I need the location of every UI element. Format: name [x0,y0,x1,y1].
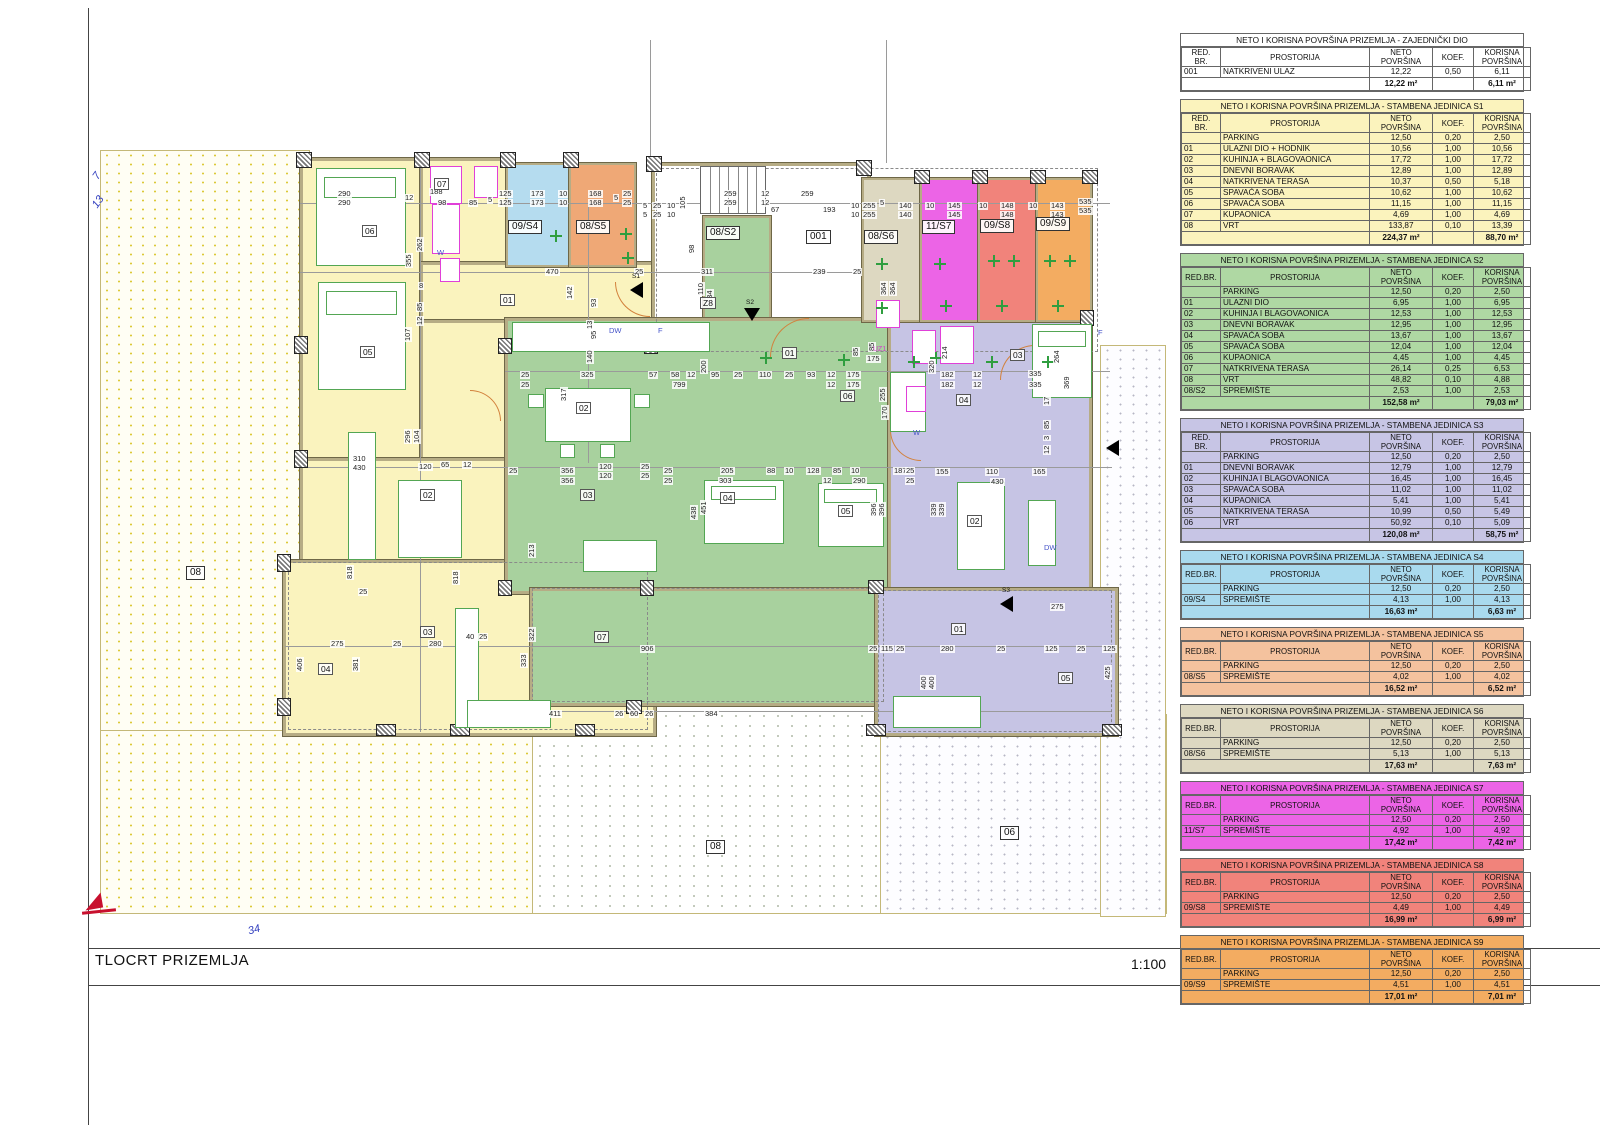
table-cell [1182,452,1221,463]
table-cell: 4,51 [1474,980,1531,991]
wall-pier [376,724,396,736]
column-header: RED. BR. [1182,433,1221,452]
dimension-label: 12 [760,199,770,207]
dimension-label: 303 [718,477,733,485]
area-table-s4: NETO I KORISNA POVRŠINA PRIZEMLJA - STAM… [1180,550,1524,620]
table-row: 06VRT50,920,105,09 [1182,518,1531,529]
table-cell: VRT [1221,221,1370,232]
dimension-label: 200 [700,359,708,374]
table-cell: 48,82 [1370,375,1433,386]
table-cell [1182,815,1221,826]
wall-pier [498,338,512,354]
entrance-arrow-label: S3 [1002,587,1010,594]
table-total-cell: 16,52 m² [1370,683,1433,696]
plant-icon [940,300,952,312]
dimension-label: 406 [296,657,304,672]
table-row: PARKING12,500,202,50 [1182,738,1531,749]
dimension-label: 85 [1043,420,1051,430]
dimension-label: 120 [598,472,613,480]
table-cell: 03 [1182,485,1221,496]
table-cell: 4,49 [1474,903,1531,914]
appliance-label: DW [609,326,622,335]
table-cell: 001 [1182,67,1221,78]
room-number-label: 01 [500,294,515,306]
dimension-label: 5 [642,211,648,219]
red-corner-mark [83,893,103,911]
dimension-label: 280 [940,645,955,653]
table-cell: 10,56 [1370,144,1433,155]
table-row: 04NATKRIVENA TERASA10,370,505,18 [1182,177,1531,188]
unit-label: 11/S7 [922,220,955,234]
drawing-sheet: TLOCRT PRIZEMLJA 1:100 29029012188988551… [0,0,1600,1132]
column-header: KORISNA POVRŠINA [1474,642,1531,661]
table-total-cell: 17,01 m² [1370,991,1433,1004]
table-cell: SPAVAĆA SOBA [1221,199,1370,210]
table-cell: 12,53 [1370,309,1433,320]
table-cell: 2,50 [1474,738,1531,749]
table-cell: 16,45 [1370,474,1433,485]
table-total-cell [1433,606,1474,619]
column-header: KOEF. [1433,114,1474,133]
table-cell: 13,67 [1370,331,1433,342]
dimension-label: 85 [852,347,860,357]
furniture-box [467,700,551,728]
column-header: NETO POVRŠINA [1370,796,1433,815]
table-cell: ULAZNI DIO + HODNIK [1221,144,1370,155]
dimension-label: 906 [640,645,655,653]
dimension-label: 12 [760,190,770,198]
dimension-label: 310 [352,455,367,463]
unit-label: 06 [1000,826,1019,840]
table-cell: 12,50 [1370,738,1433,749]
table-cell: 12,50 [1370,287,1433,298]
table-cell: 0,20 [1433,287,1474,298]
table-cell: 12,50 [1370,661,1433,672]
column-header: KOEF. [1433,48,1474,67]
furniture-box [560,444,575,458]
table-total-cell [1433,78,1474,91]
area-table-s1: NETO I KORISNA POVRŠINA PRIZEMLJA - STAM… [1180,99,1524,246]
table-cell: DNEVNI BORAVAK [1221,166,1370,177]
room-number-label: 02 [576,402,591,414]
wall-pier [498,580,512,596]
column-header: RED.BR. [1182,642,1221,661]
table-cell: 04 [1182,496,1221,507]
room-number-label: 06 [840,390,855,402]
dimension-label: 107 [404,327,412,342]
table-cell: 1,00 [1433,320,1474,331]
room-number-label: 04 [956,394,971,406]
dimension-label: 140 [586,349,594,364]
unit-label: 09/S4 [508,220,542,234]
table-cell: 6,95 [1370,298,1433,309]
table-total-cell: 6,63 m² [1474,606,1531,619]
dimension-label: 290 [337,199,352,207]
dimension-label: 58 [670,371,680,379]
dimension-label: 259 [800,190,815,198]
furniture-box [1028,500,1056,566]
dimension-label: 25 [652,211,662,219]
entrance-arrow-icon [1106,440,1119,456]
table-cell: 4,45 [1370,353,1433,364]
table-row: 05SPAVAĆA SOBA10,621,0010,62 [1182,188,1531,199]
table-cell: 1,00 [1433,463,1474,474]
dimension-label: 10 [784,467,794,475]
table-row: 09/S8SPREMIŠTE4,491,004,49 [1182,903,1531,914]
area-table-title: NETO I KORISNA POVRŠINA PRIZEMLJA - STAM… [1181,254,1523,267]
room-number-label: 05 [838,505,853,517]
table-cell: SPAVAĆA SOBA [1221,342,1370,353]
table-cell [1182,133,1221,144]
table-cell: 17,72 [1474,155,1531,166]
dimension-label: 17 [1043,396,1051,406]
dimension-label: 125 [1044,645,1059,653]
table-cell: 05 [1182,342,1221,353]
wall-pier [500,152,516,168]
furniture-bed [316,168,406,266]
table-cell: NATKRIVENI ULAZ [1221,67,1370,78]
dimension-label: 339 [938,502,946,517]
appliance-label: W [437,248,444,257]
area-table-s8: NETO I KORISNA POVRŠINA PRIZEMLJA - STAM… [1180,858,1524,928]
table-cell: 12,89 [1474,166,1531,177]
dimension-label: 25 [622,190,632,198]
dimension-label: 98 [437,199,447,207]
table-cell: 5,13 [1370,749,1433,760]
dimension-label: 335 [1028,370,1043,378]
furniture-box [600,444,615,458]
table-cell [1182,892,1221,903]
table-total-cell [1433,991,1474,1004]
table-row: PARKING12,500,202,50 [1182,969,1531,980]
table-cell: 0,20 [1433,661,1474,672]
table-row: 07NATKRIVENA TERASA26,140,256,53 [1182,364,1531,375]
room-number-label: Z8 [700,297,716,309]
table-cell: 1,00 [1433,485,1474,496]
dimension-label: 12 [822,477,832,485]
dimension-label: 535 [1078,198,1093,206]
table-total-cell [1433,914,1474,927]
column-header: KOEF. [1433,950,1474,969]
dimension-label: 25 [905,477,915,485]
table-cell: 1,00 [1433,166,1474,177]
table-row: 05NATKRIVENA TERASA10,990,505,49 [1182,507,1531,518]
dimension-label: 296 [404,429,412,444]
furniture-box [348,432,376,560]
dimension-label: 98 [688,244,696,254]
table-cell: PARKING [1221,452,1370,463]
dimension-label: 25 [622,199,632,207]
table-cell: KUPAONICA [1221,210,1370,221]
dimension-label: 12 [1043,445,1051,455]
dimension-label: 25 [392,640,402,648]
dimension-label: 155 [935,468,950,476]
table-cell: 2,50 [1474,892,1531,903]
table-cell: PARKING [1221,738,1370,749]
unit-label: 08/S2 [706,226,740,240]
dimension-label: 145 [947,202,962,210]
table-row: 01ULAZNI DIO + HODNIK10,561,0010,56 [1182,144,1531,155]
table-cell: 03 [1182,166,1221,177]
furniture-box [634,394,650,408]
column-header: NETO POVRŠINA [1370,114,1433,133]
dimension-label: 25 [663,477,673,485]
table-cell: 5,13 [1474,749,1531,760]
plant-icon [622,252,634,264]
dimension-label: 40 [465,633,475,641]
dimension-label: 140 [898,211,913,219]
area-table-title: NETO I KORISNA POVRŠINA PRIZEMLJA - STAM… [1181,936,1523,949]
table-cell [1182,738,1221,749]
table-cell [1182,584,1221,595]
unit-label: 001 [806,230,831,244]
table-cell: 02 [1182,474,1221,485]
table-total-cell [1182,914,1370,927]
dimension-label: 168 [588,199,603,207]
table-cell [1182,661,1221,672]
dimension-label: 26 [644,710,654,718]
table-cell: DNEVNI BORAVAK [1221,463,1370,474]
table-cell: SPREMIŠTE [1221,903,1370,914]
dimension-label: 10 [666,211,676,219]
dimension-label: 213 [528,543,536,558]
table-total-cell: 16,99 m² [1370,914,1433,927]
bathroom-fixture [474,166,498,198]
dimension-label: 125 [498,199,513,207]
table-cell: PARKING [1221,892,1370,903]
table-cell: PARKING [1221,661,1370,672]
column-header: PROSTORIJA [1221,642,1370,661]
table-cell: SPREMIŠTE [1221,749,1370,760]
table-total-cell: 6,52 m² [1474,683,1531,696]
table-total-cell: 79,03 m² [1474,397,1531,410]
plant-icon [1064,255,1076,267]
table-cell [1182,287,1221,298]
dimension-label: 400 [928,675,936,690]
wall-pier [294,336,308,354]
table-cell: 1,00 [1433,298,1474,309]
table-cell: 13,67 [1474,331,1531,342]
dimension-label: 140 [898,202,913,210]
table-cell: PARKING [1221,133,1370,144]
dimension-label: 5 [613,194,619,202]
dimension-label: 12 [826,371,836,379]
dimension-label: 5 [487,196,493,204]
table-cell: 07 [1182,210,1221,221]
table-cell: 1,00 [1433,672,1474,683]
dimension-label: 115 [880,645,894,653]
wall-pier [296,152,312,168]
table-row: 08VRT133,870,1013,39 [1182,221,1531,232]
table-cell: KUHINJA I BLAGOVAONICA [1221,474,1370,485]
dimension-label: 396 [878,502,886,517]
appliance-label: F [1098,328,1103,337]
unit-label: 08/S6 [864,230,898,244]
column-header: RED.BR. [1182,950,1221,969]
dimension-label: 93 [806,371,816,379]
room-number-label: 06 [362,225,377,237]
table-cell: 1,00 [1433,331,1474,342]
area-table-title: NETO I KORISNA POVRŠINA PRIZEMLJA - STAM… [1181,782,1523,795]
dimension-label: 25 [895,645,905,653]
room-number-label: 04 [318,663,333,675]
column-header: KORISNA POVRŠINA [1474,950,1531,969]
wall-pier [1102,724,1122,736]
dimension-label: 25 [733,371,743,379]
table-total-cell [1182,991,1370,1004]
column-header: KOEF. [1433,796,1474,815]
table-total-row: 17,63 m²7,63 m² [1182,760,1531,773]
table-row: 03DNEVNI BORAVAK12,951,0012,95 [1182,320,1531,331]
column-header: KORISNA POVRŠINA [1474,873,1531,892]
dimension-label: 430 [990,478,1005,486]
dimension-label: 175 [866,355,881,363]
table-cell: 4,13 [1370,595,1433,606]
column-header: NETO POVRŠINA [1370,719,1433,738]
table-cell: 1,00 [1433,199,1474,210]
storage-09-s4 [506,163,573,267]
column-header: KORISNA POVRŠINA [1474,719,1531,738]
table-cell: 12,79 [1370,463,1433,474]
room-number-label: 01 [782,347,797,359]
dimension-label: 10 [925,202,935,210]
table-total-cell: 120,08 m² [1370,529,1433,542]
table-cell: SPAVAĆA SOBA [1221,188,1370,199]
appliance-label: F [658,326,663,335]
unit-label: 08/S5 [576,220,610,234]
dimension-label: 10 [666,202,676,210]
table-total-cell [1433,232,1474,245]
table-row: 03SPAVAĆA SOBA11,021,0011,02 [1182,485,1531,496]
area-table-title: NETO I KORISNA POVRŠINA PRIZEMLJA - STAM… [1181,100,1523,113]
unit-label: 09/S9 [1036,217,1070,231]
table-cell: 10,56 [1474,144,1531,155]
dimension-label: 12 [416,316,424,326]
wall-pier [563,152,579,168]
dimension-label: 280 [428,640,443,648]
dimension-label: 25 [652,202,662,210]
dimension-label: 255 [879,387,887,402]
table-cell: PARKING [1221,969,1370,980]
table-total-row: 16,52 m²6,52 m² [1182,683,1531,696]
wall-pier [640,580,654,596]
table-cell: 4,92 [1370,826,1433,837]
area-table-s9: NETO I KORISNA POVRŠINA PRIZEMLJA - STAM… [1180,935,1524,1005]
table-cell: 09/S4 [1182,595,1221,606]
table-total-cell [1182,232,1370,245]
table-cell: 08 [1182,375,1221,386]
table-cell: 06 [1182,199,1221,210]
table-cell: 4,49 [1370,903,1433,914]
table-row: 001NATKRIVENI ULAZ12,220,506,11 [1182,67,1531,78]
table-cell: DNEVNI BORAVAK [1221,320,1370,331]
table-cell: 2,53 [1474,386,1531,397]
plant-icon [876,302,888,314]
area-table-title: NETO I KORISNA POVRŠINA PRIZEMLJA - STAM… [1181,551,1523,564]
dimension-label: 255 [862,202,877,210]
table-cell: 12,95 [1474,320,1531,331]
table-row: 01DNEVNI BORAVAK12,791,0012,79 [1182,463,1531,474]
column-header: NETO POVRŠINA [1370,48,1433,67]
table-cell: 1,00 [1433,210,1474,221]
area-table-title: NETO I KORISNA POVRŠINA PRIZEMLJA - STAM… [1181,419,1523,432]
dimension-label: 259 [723,190,738,198]
table-cell: 12,50 [1370,969,1433,980]
dimension-label: 95 [710,371,720,379]
table-row: 08/S6SPREMIŠTE5,131,005,13 [1182,749,1531,760]
table-cell: 12,22 [1370,67,1433,78]
dimension-label: 10 [1028,202,1038,210]
table-cell: KUPAONICA [1221,496,1370,507]
dimension-label: 60 [629,710,639,718]
table-cell: 2,50 [1474,452,1531,463]
table-total-cell: 12,22 m² [1370,78,1433,91]
dimension-label: 85 [416,302,424,312]
area-table-s2: NETO I KORISNA POVRŠINA PRIZEMLJA - STAM… [1180,253,1524,411]
table-total-cell: 6,99 m² [1474,914,1531,927]
plant-icon [988,255,1000,267]
dimension-label: 205 [720,467,735,475]
dimension-label: 255 [862,211,877,219]
table-cell: PARKING [1221,287,1370,298]
dimension-label: 5 [879,199,885,207]
dimension-label: 25 [996,645,1006,653]
handwritten-mark: 34 [247,923,262,938]
table-cell: 2,50 [1474,584,1531,595]
column-header: KORISNA POVRŠINA [1474,565,1531,584]
column-header: KORISNA POVRŠINA [1474,796,1531,815]
area-table-s6: NETO I KORISNA POVRŠINA PRIZEMLJA - STAM… [1180,704,1524,774]
dimension-label: 320 [928,359,936,374]
table-cell: 0,20 [1433,452,1474,463]
room-number-label: 03 [580,489,595,501]
table-cell: 12,50 [1370,133,1433,144]
table-cell: 06 [1182,518,1221,529]
table-total-cell [1433,529,1474,542]
dimension-label: 10 [850,202,860,210]
dimension-label: 355 [405,253,413,268]
dimension-label: 182 [940,381,955,389]
dimension-label: 451 [700,500,708,515]
dimension-label: 168 [588,190,603,198]
table-cell: 10,37 [1370,177,1433,188]
plant-icon [1044,255,1056,267]
bathroom-fixture [906,386,926,412]
dimension-label: 818 [452,570,460,585]
table-cell: KUPAONICA [1221,353,1370,364]
table-row: 08/S2SPREMIŠTE2,531,002,53 [1182,386,1531,397]
table-cell: 0,10 [1433,375,1474,386]
table-total-cell: 7,63 m² [1474,760,1531,773]
dimension-label: 290 [852,477,867,485]
table-cell: 2,50 [1474,287,1531,298]
table-cell: 1,00 [1433,826,1474,837]
table-cell: 1,00 [1433,595,1474,606]
table-cell: 1,00 [1433,496,1474,507]
table-cell: 1,00 [1433,474,1474,485]
table-cell: 08 [1182,221,1221,232]
column-header: PROSTORIJA [1221,950,1370,969]
table-total-cell: 17,63 m² [1370,760,1433,773]
appliance-label: DW [1044,543,1057,552]
table-row: PARKING12,500,202,50 [1182,133,1531,144]
room-number-label: 07 [594,631,609,643]
table-row: PARKING12,500,202,50 [1182,452,1531,463]
table-cell: 08/S6 [1182,749,1221,760]
table-cell: 08/S5 [1182,672,1221,683]
dimension-label: 25 [905,467,915,475]
table-cell: PARKING [1221,815,1370,826]
